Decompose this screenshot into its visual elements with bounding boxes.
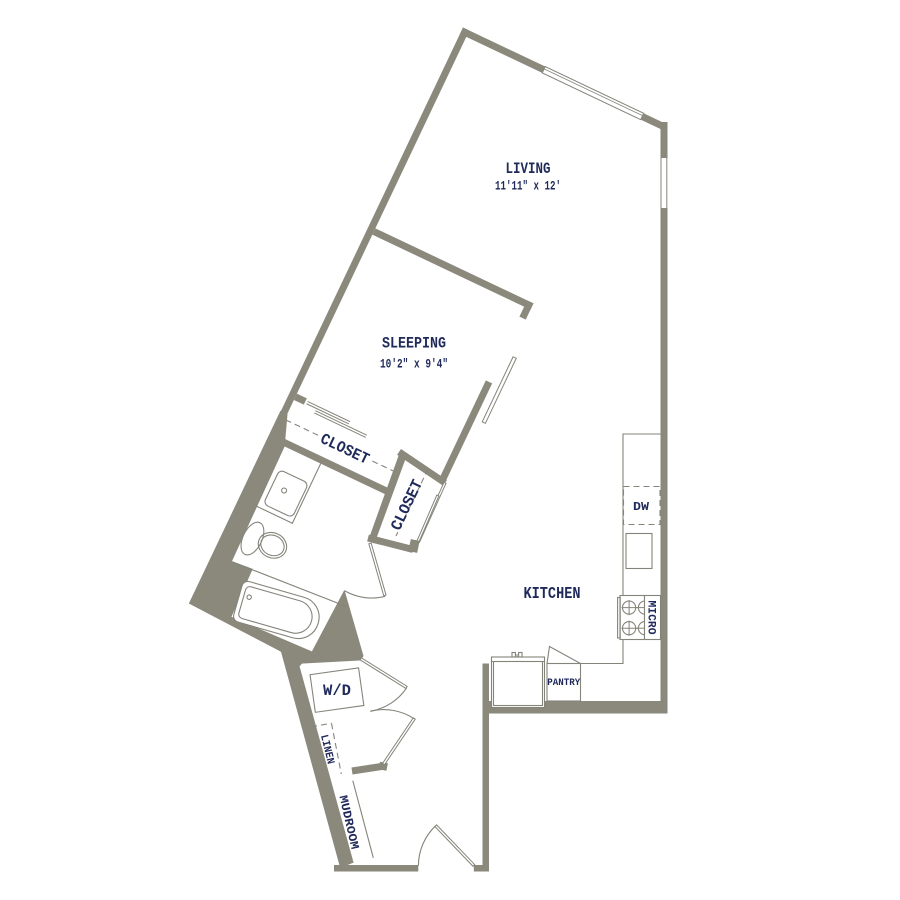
svg-text:PANTRY: PANTRY (547, 677, 581, 689)
svg-text:DW: DW (633, 500, 650, 514)
svg-text:LIVING: LIVING (506, 160, 551, 178)
svg-text:11'11" x 12': 11'11" x 12' (495, 180, 561, 194)
svg-text:SLEEPING: SLEEPING (382, 335, 446, 353)
svg-text:KITCHEN: KITCHEN (524, 585, 581, 604)
svg-text:MICRO: MICRO (645, 601, 657, 635)
svg-text:10'2" x 9'4": 10'2" x 9'4" (380, 358, 448, 372)
svg-text:W/D: W/D (323, 682, 351, 700)
